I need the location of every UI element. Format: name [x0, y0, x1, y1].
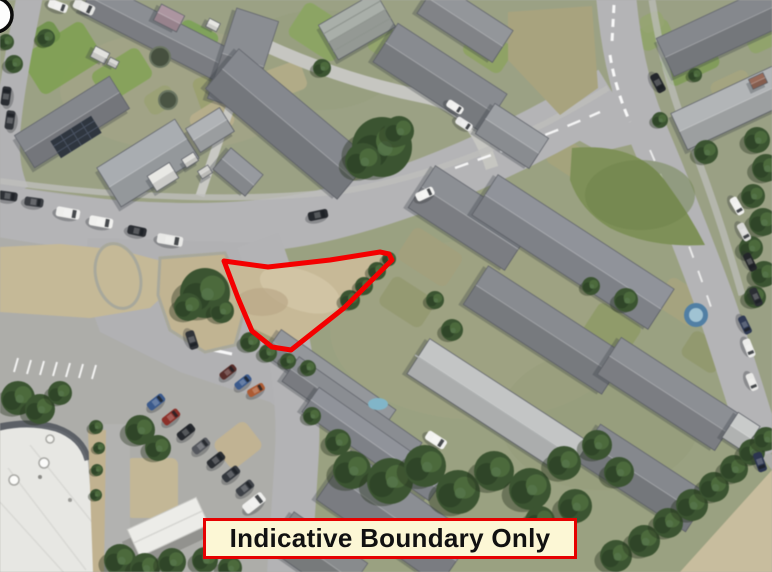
aerial-site-map: Indicative Boundary Only: [0, 0, 772, 572]
boundary-label-text: Indicative Boundary Only: [230, 523, 551, 554]
annotation-overlay: [0, 0, 772, 572]
boundary-polygon: [224, 252, 392, 350]
boundary-label: Indicative Boundary Only: [203, 518, 577, 559]
north-symbol-icon: [0, 0, 12, 32]
